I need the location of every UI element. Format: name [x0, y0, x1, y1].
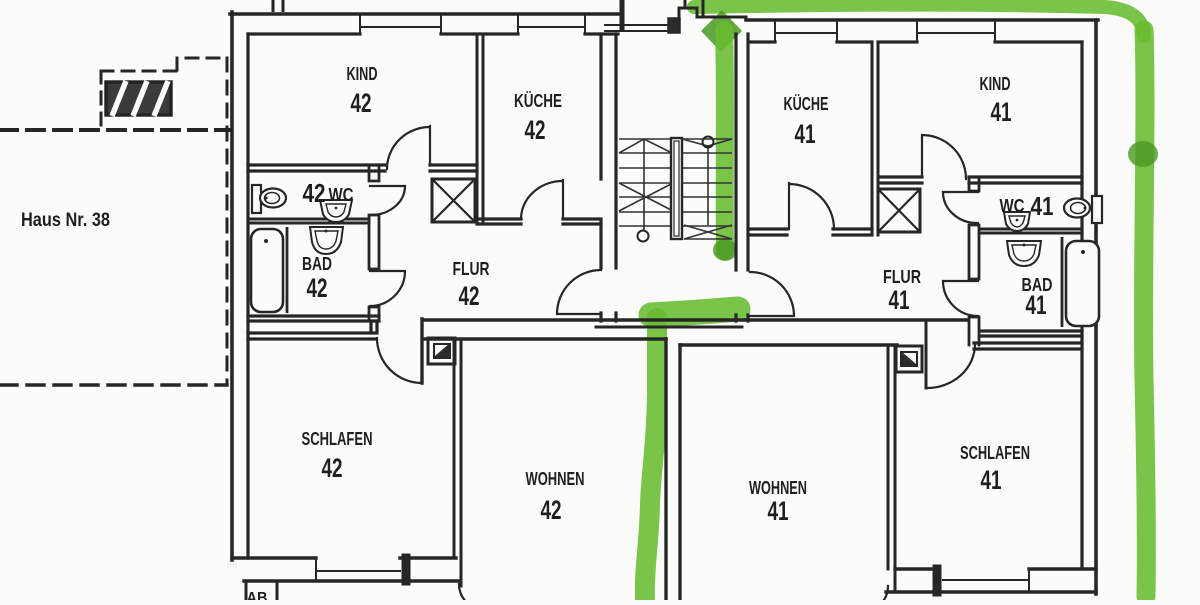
svg-text:WOHNEN: WOHNEN: [526, 469, 585, 489]
svg-text:41: 41: [1026, 290, 1047, 320]
svg-text:BAD: BAD: [302, 254, 332, 274]
svg-text:WC: WC: [329, 185, 354, 205]
svg-text:AB: AB: [247, 590, 268, 600]
svg-text:41: 41: [795, 119, 816, 149]
svg-text:FLUR: FLUR: [883, 267, 921, 287]
svg-text:42: 42: [459, 281, 480, 311]
svg-text:41: 41: [1031, 191, 1054, 221]
svg-text:42: 42: [322, 453, 343, 483]
svg-text:42: 42: [303, 178, 326, 208]
svg-text:KIND: KIND: [980, 74, 1011, 94]
svg-text:41: 41: [991, 97, 1012, 127]
svg-text:42: 42: [525, 115, 546, 145]
svg-text:41: 41: [768, 496, 789, 526]
svg-text:41: 41: [889, 285, 910, 315]
svg-text:WC: WC: [1000, 196, 1025, 216]
svg-text:SCHLAFEN: SCHLAFEN: [960, 443, 1030, 463]
svg-text:Haus Nr. 38: Haus Nr. 38: [21, 210, 110, 231]
svg-text:KÜCHE: KÜCHE: [514, 91, 562, 111]
svg-text:KIND: KIND: [347, 64, 378, 84]
svg-text:41: 41: [981, 465, 1002, 495]
svg-text:42: 42: [307, 273, 328, 303]
svg-text:42: 42: [351, 88, 372, 118]
svg-text:FLUR: FLUR: [453, 259, 490, 279]
svg-text:42: 42: [541, 495, 562, 525]
svg-text:WOHNEN: WOHNEN: [749, 478, 807, 498]
svg-text:KÜCHE: KÜCHE: [784, 94, 829, 114]
svg-text:SCHLAFEN: SCHLAFEN: [302, 429, 373, 449]
